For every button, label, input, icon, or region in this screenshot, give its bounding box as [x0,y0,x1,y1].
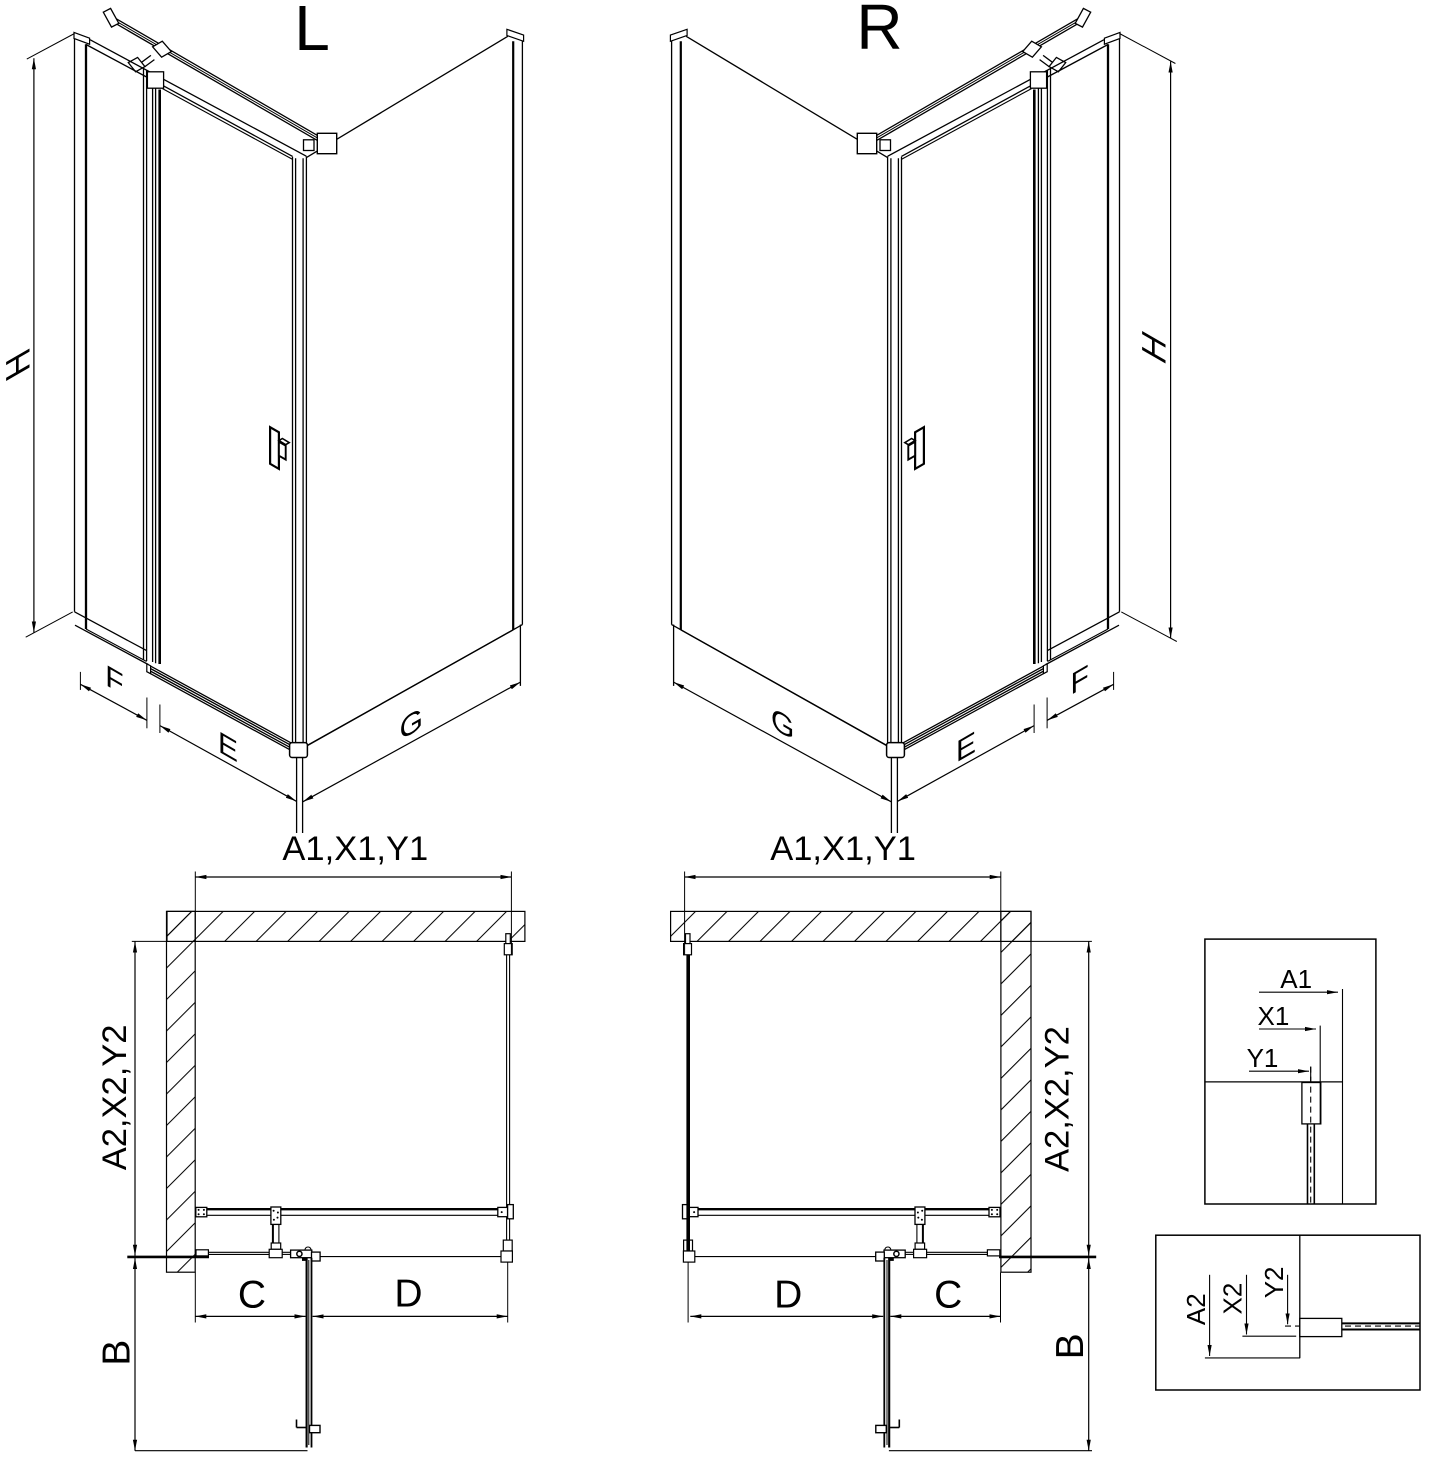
svg-text:A2: A2 [1181,1293,1211,1325]
svg-text:A1,X1,Y1: A1,X1,Y1 [282,830,428,868]
svg-text:A1,X1,Y1: A1,X1,Y1 [770,830,916,868]
svg-text:C: C [934,1274,962,1317]
svg-text:X2: X2 [1217,1283,1247,1315]
svg-text:L: L [294,0,330,64]
svg-text:C: C [238,1274,266,1317]
svg-text:A2,X2,Y2: A2,X2,Y2 [1039,1026,1077,1172]
svg-text:A2,X2,Y2: A2,X2,Y2 [96,1025,134,1171]
svg-text:Y2: Y2 [1259,1266,1289,1298]
svg-text:B: B [1049,1333,1092,1359]
svg-text:B: B [96,1340,139,1366]
svg-text:R: R [856,0,902,63]
svg-text:D: D [394,1273,422,1316]
svg-text:X1: X1 [1257,1001,1289,1031]
svg-text:D: D [774,1274,802,1317]
svg-text:A1: A1 [1280,964,1312,994]
svg-text:Y1: Y1 [1247,1043,1279,1073]
